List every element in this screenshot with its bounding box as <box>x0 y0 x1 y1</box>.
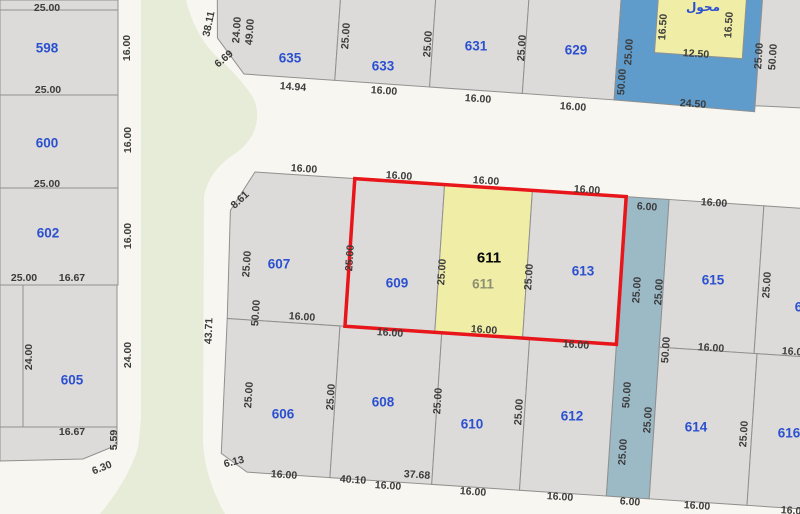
parcel-600[interactable] <box>0 95 118 188</box>
dimension-label: 25.00 <box>35 84 61 96</box>
parcel-number-616[interactable]: 616 <box>778 426 800 441</box>
parcel-number-606[interactable]: 606 <box>272 407 295 422</box>
dimension-label: 16.00 <box>376 326 403 340</box>
block-central <box>213 171 800 512</box>
dimension-label: 25.00 <box>242 381 256 408</box>
dimension-label: 25.00 <box>34 178 60 190</box>
dimension-label: 16.00 <box>374 479 401 493</box>
dimension-label: 16.50 <box>656 13 670 40</box>
cadastral-map: 25.0059816.0025.0060016.0025.0060216.002… <box>0 0 800 514</box>
dimension-label: 24.50 <box>679 97 706 111</box>
dimension-label: 16.00 <box>683 499 710 513</box>
parcel-number-610[interactable]: 610 <box>461 417 484 432</box>
selected-parcel-number-muted: 611 <box>472 277 494 292</box>
parcel-number-600[interactable]: 600 <box>36 136 59 151</box>
parcel-number-612[interactable]: 612 <box>561 409 584 424</box>
dimension-label: 16.00 <box>464 92 491 106</box>
dimension-label: 25.00 <box>431 387 445 414</box>
dimension-label: 16.00 <box>370 84 397 98</box>
dimension-label: 25.00 <box>515 34 529 61</box>
dimension-label: 6.00 <box>636 200 657 213</box>
selected-parcel-number: 611 <box>477 250 501 267</box>
dimension-label: 24.00 <box>23 344 35 370</box>
dimension-label: 25.00 <box>630 276 644 303</box>
parcel-number-598[interactable]: 598 <box>36 41 59 56</box>
dimension-label: 43.71 <box>203 318 216 345</box>
dimension-label: 49.00 <box>243 18 257 45</box>
dimension-label: 25.00 <box>435 258 449 285</box>
dimension-label: 5.59 <box>108 430 120 451</box>
dimension-label: 14.94 <box>279 80 306 94</box>
dimension-label: 25.00 <box>240 250 254 277</box>
dimension-label: 25.00 <box>622 38 636 65</box>
dimension-label: 25.00 <box>752 42 766 69</box>
parcel-number-613[interactable]: 613 <box>572 264 595 279</box>
dimension-label: 16.00 <box>470 323 497 337</box>
dimension-label: 24.00 <box>230 16 244 43</box>
cadastral-map-viewport: 25.0059816.0025.0060016.0025.0060216.002… <box>0 0 800 514</box>
dimension-label: 25.00 <box>616 438 630 465</box>
dimension-label: 16.00 <box>472 174 499 188</box>
parcel-number-629[interactable]: 629 <box>565 43 588 58</box>
parcel-number-631[interactable]: 631 <box>465 39 488 54</box>
dimension-label: 50.00 <box>766 43 780 70</box>
dimension-label: 37.68 <box>403 468 430 482</box>
parcel-number-605[interactable]: 605 <box>61 373 84 388</box>
parcel-sliver-west[interactable] <box>0 285 23 427</box>
parcel-number-617[interactable]: 617 <box>795 300 800 315</box>
dimension-label: 16.00 <box>288 310 315 324</box>
dimension-label: 16.00 <box>122 127 134 153</box>
dimension-label: 25.00 <box>421 30 435 57</box>
dimension-label: 25.00 <box>641 406 655 433</box>
dimension-label: 16.00 <box>385 169 412 183</box>
dimension-label: 16.67 <box>59 272 85 284</box>
dimension-label: 50.00 <box>659 336 673 363</box>
dimension-label: 12.50 <box>682 47 709 61</box>
dimension-label: 50.00 <box>615 68 629 95</box>
parcel-number-635[interactable]: 635 <box>279 51 302 66</box>
dimension-label: 40.10 <box>339 473 366 487</box>
parcel-number-602[interactable]: 602 <box>37 226 60 241</box>
dimension-label: 16.00 <box>780 504 800 514</box>
dimension-label: 16.00 <box>459 485 486 499</box>
dimension-label: 16.00 <box>270 468 297 482</box>
parcel-number-633[interactable]: 633 <box>372 59 395 74</box>
dimension-label: 16.00 <box>700 196 727 210</box>
dimension-label: 25.00 <box>652 278 666 305</box>
dimension-label: 25.00 <box>512 398 526 425</box>
dimension-label: 16.00 <box>781 345 800 359</box>
dimension-label: 16.00 <box>290 162 317 176</box>
parcel-number-615[interactable]: 615 <box>702 273 725 288</box>
parcel-609[interactable] <box>345 179 445 333</box>
dimension-label: 6.00 <box>619 495 640 508</box>
dimension-label: 24.00 <box>122 342 134 368</box>
parcel-598[interactable] <box>0 10 118 95</box>
parcel-number-614[interactable]: 614 <box>685 420 708 435</box>
dimension-label: 25.00 <box>737 420 751 447</box>
dimension-label: 16.50 <box>722 11 736 38</box>
transformer-arabic-label: محول <box>686 0 720 15</box>
dimension-label: 16.00 <box>546 490 573 504</box>
dimension-label: 25.00 <box>760 271 774 298</box>
dimension-label: 16.00 <box>121 35 133 61</box>
dimension-label: 16.00 <box>122 223 134 249</box>
dimension-label: 16.00 <box>573 183 600 197</box>
dimension-label: 25.00 <box>11 272 37 284</box>
dimension-label: 50.00 <box>249 299 263 326</box>
dimension-label: 16.00 <box>559 100 586 114</box>
dimension-label: 16.00 <box>562 338 589 352</box>
parcel-number-608[interactable]: 608 <box>372 395 395 410</box>
parcel-number-609[interactable]: 609 <box>386 276 409 291</box>
dimension-label: 25.00 <box>324 383 338 410</box>
dimension-label: 16.00 <box>697 341 724 355</box>
parcel-605[interactable] <box>23 285 117 427</box>
parcel-606[interactable] <box>217 318 340 477</box>
dimension-label: 25.00 <box>522 263 536 290</box>
dimension-label: 25.00 <box>343 244 357 271</box>
dimension-label: 25.00 <box>34 2 60 14</box>
parcel-number-607[interactable]: 607 <box>268 257 291 272</box>
dimension-label: 16.67 <box>59 426 85 438</box>
dimension-label: 50.00 <box>620 381 634 408</box>
dimension-label: 25.00 <box>339 22 353 49</box>
